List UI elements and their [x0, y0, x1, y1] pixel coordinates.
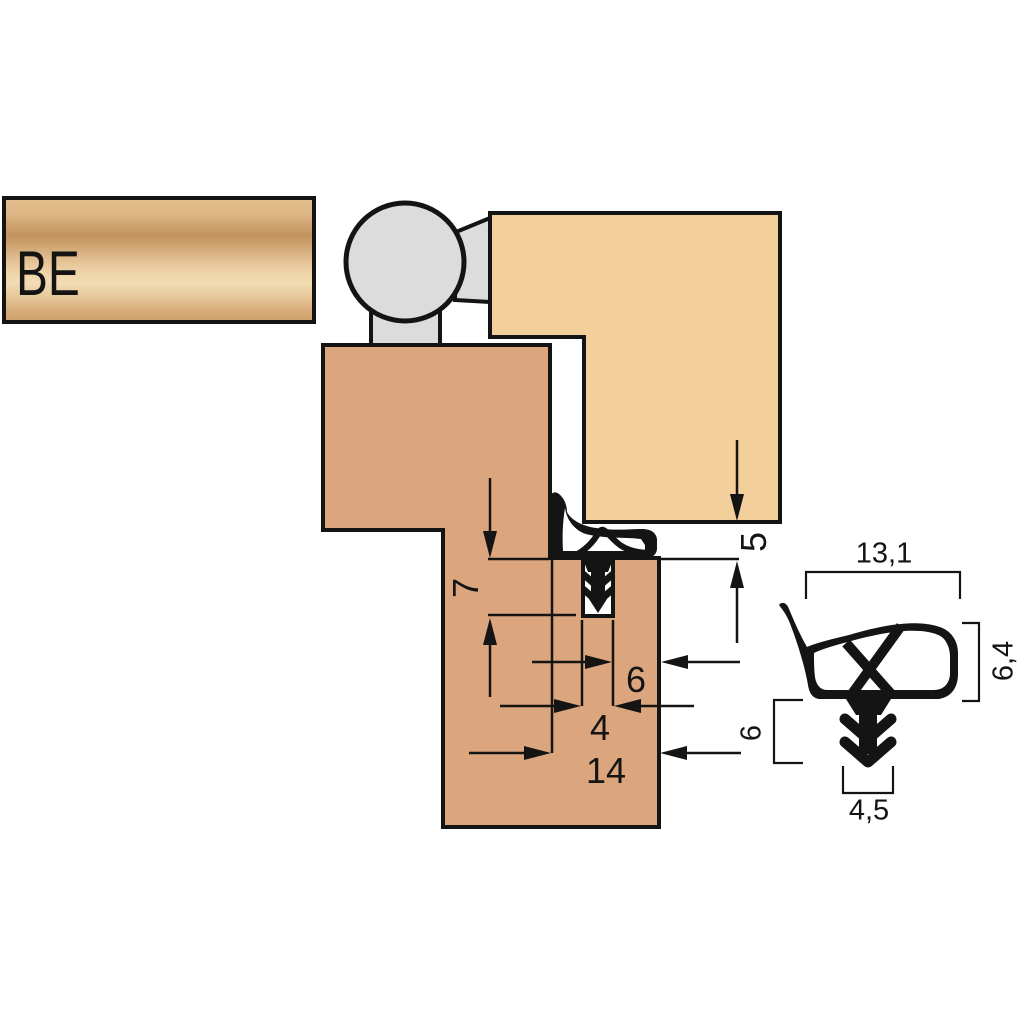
seal-cross-section-diagram: BE [0, 0, 1024, 1024]
dim-5-up-arrow-icon [730, 561, 744, 588]
seal-profile-detail [774, 572, 979, 793]
dim-14-left-arrow-icon [660, 746, 687, 760]
seal-detail-stem-funnel [846, 699, 891, 715]
hinge-knuckle-icon [346, 203, 464, 321]
dim-label-rabbet-width: 14 [586, 753, 626, 789]
dim-label-stem-width: 4,5 [849, 797, 889, 826]
dim-label-profile-height: 6,4 [990, 641, 1019, 681]
dim-label-groove-depth: 7 [448, 578, 484, 598]
dim-label-clearance-gap: 5 [736, 532, 772, 552]
seal-stem-funnel [582, 557, 614, 572]
hinge [346, 203, 490, 345]
dim-6-left-arrow-icon [661, 655, 688, 669]
bracket-13-1 [806, 572, 960, 599]
dim-label-groove-width: 4 [590, 710, 610, 746]
diagram-drawing [0, 0, 1024, 1024]
dim-label-stem-height: 6 [738, 725, 767, 741]
bracket-6-4 [962, 623, 979, 701]
bracket-4-5 [843, 766, 893, 793]
bracket-6-stem [774, 700, 803, 763]
dim-label-edge-distance: 6 [626, 662, 646, 698]
dim-label-profile-width: 13,1 [856, 540, 912, 569]
seal-stem-tip [589, 599, 607, 613]
